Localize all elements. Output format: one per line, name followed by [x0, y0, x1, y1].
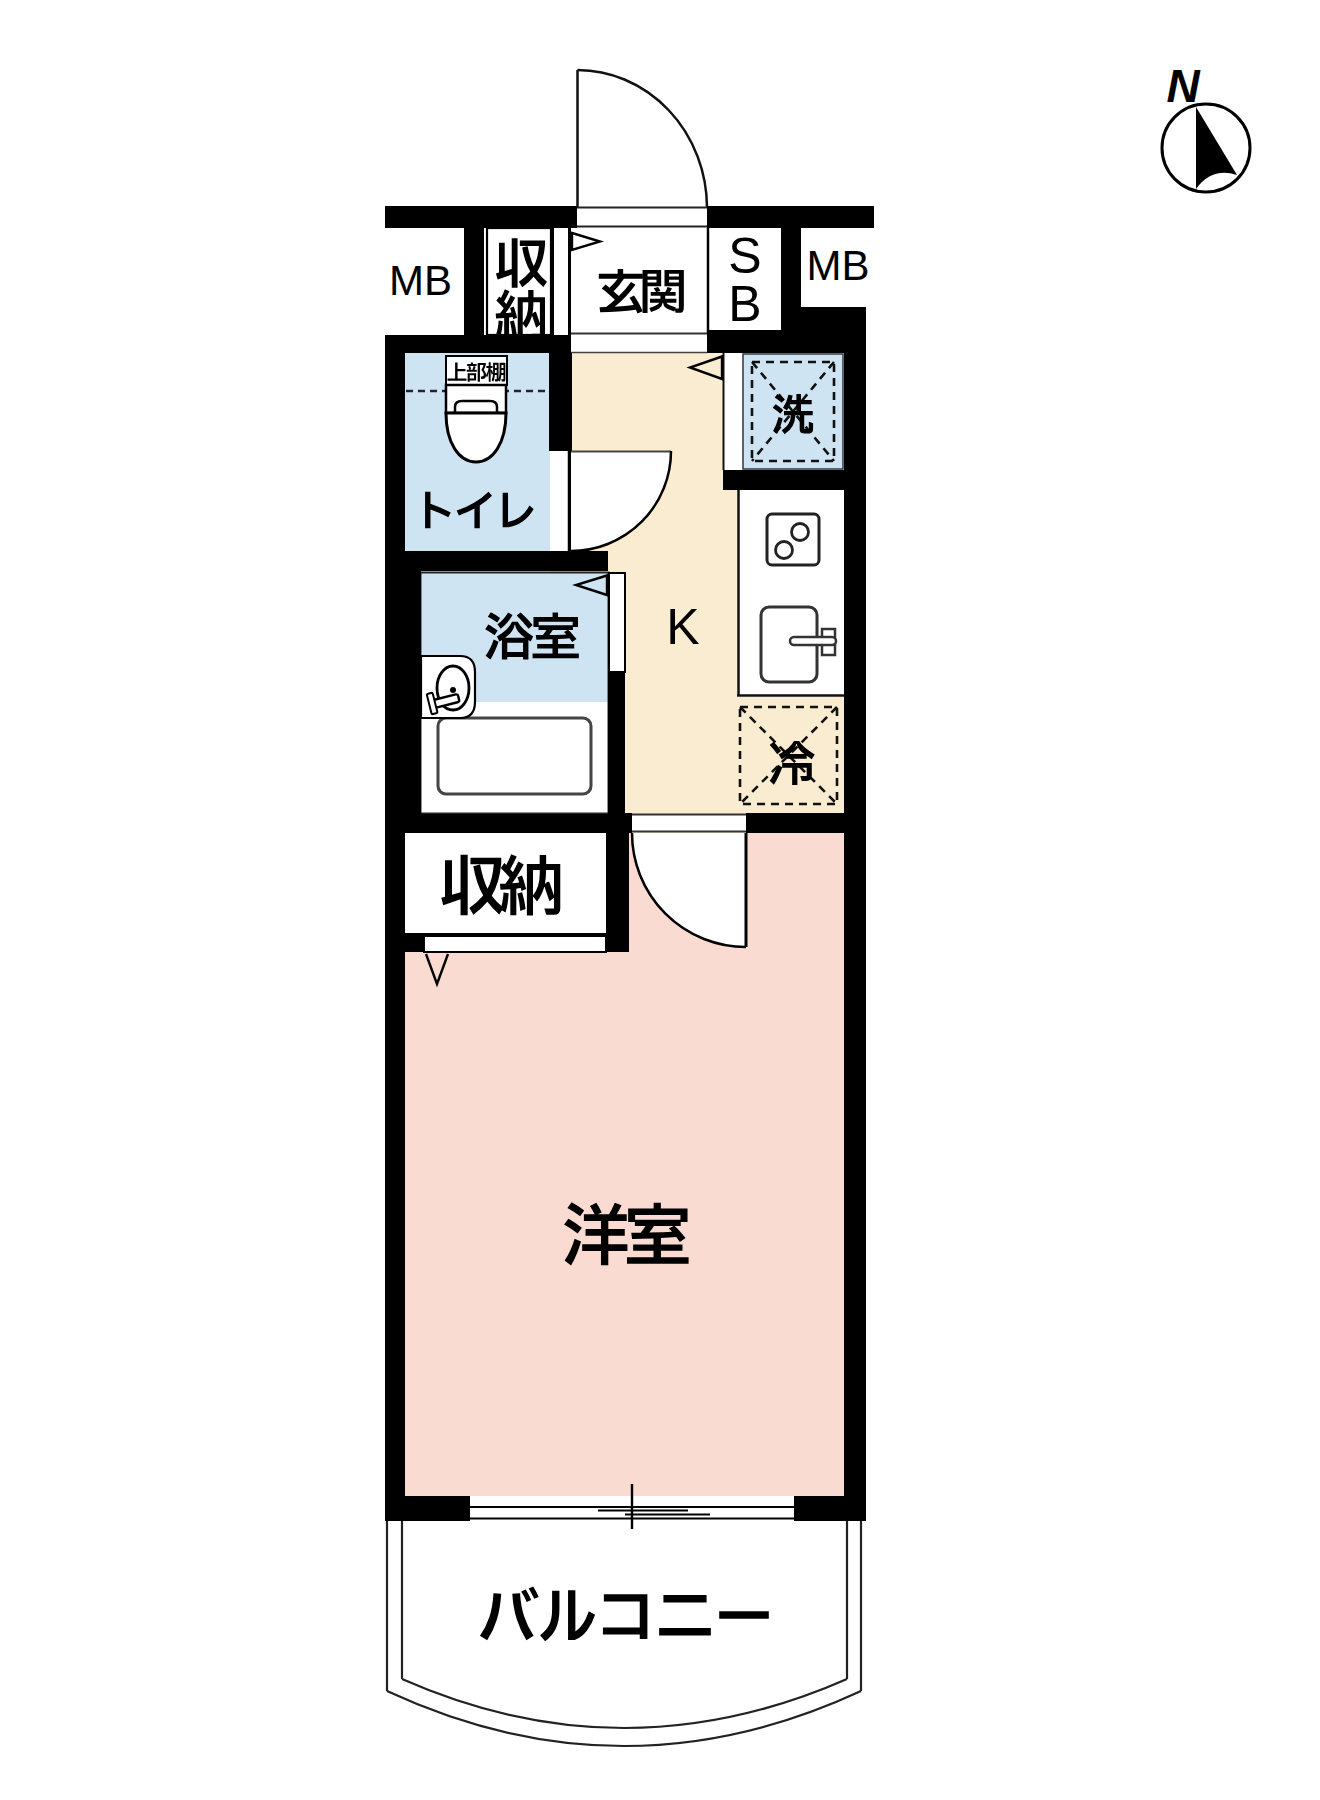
svg-text:N: N [1166, 60, 1200, 112]
svg-text:B: B [728, 276, 761, 332]
svg-text:K: K [666, 599, 699, 655]
svg-text:MB: MB [389, 257, 452, 304]
svg-text:MB: MB [807, 242, 870, 289]
